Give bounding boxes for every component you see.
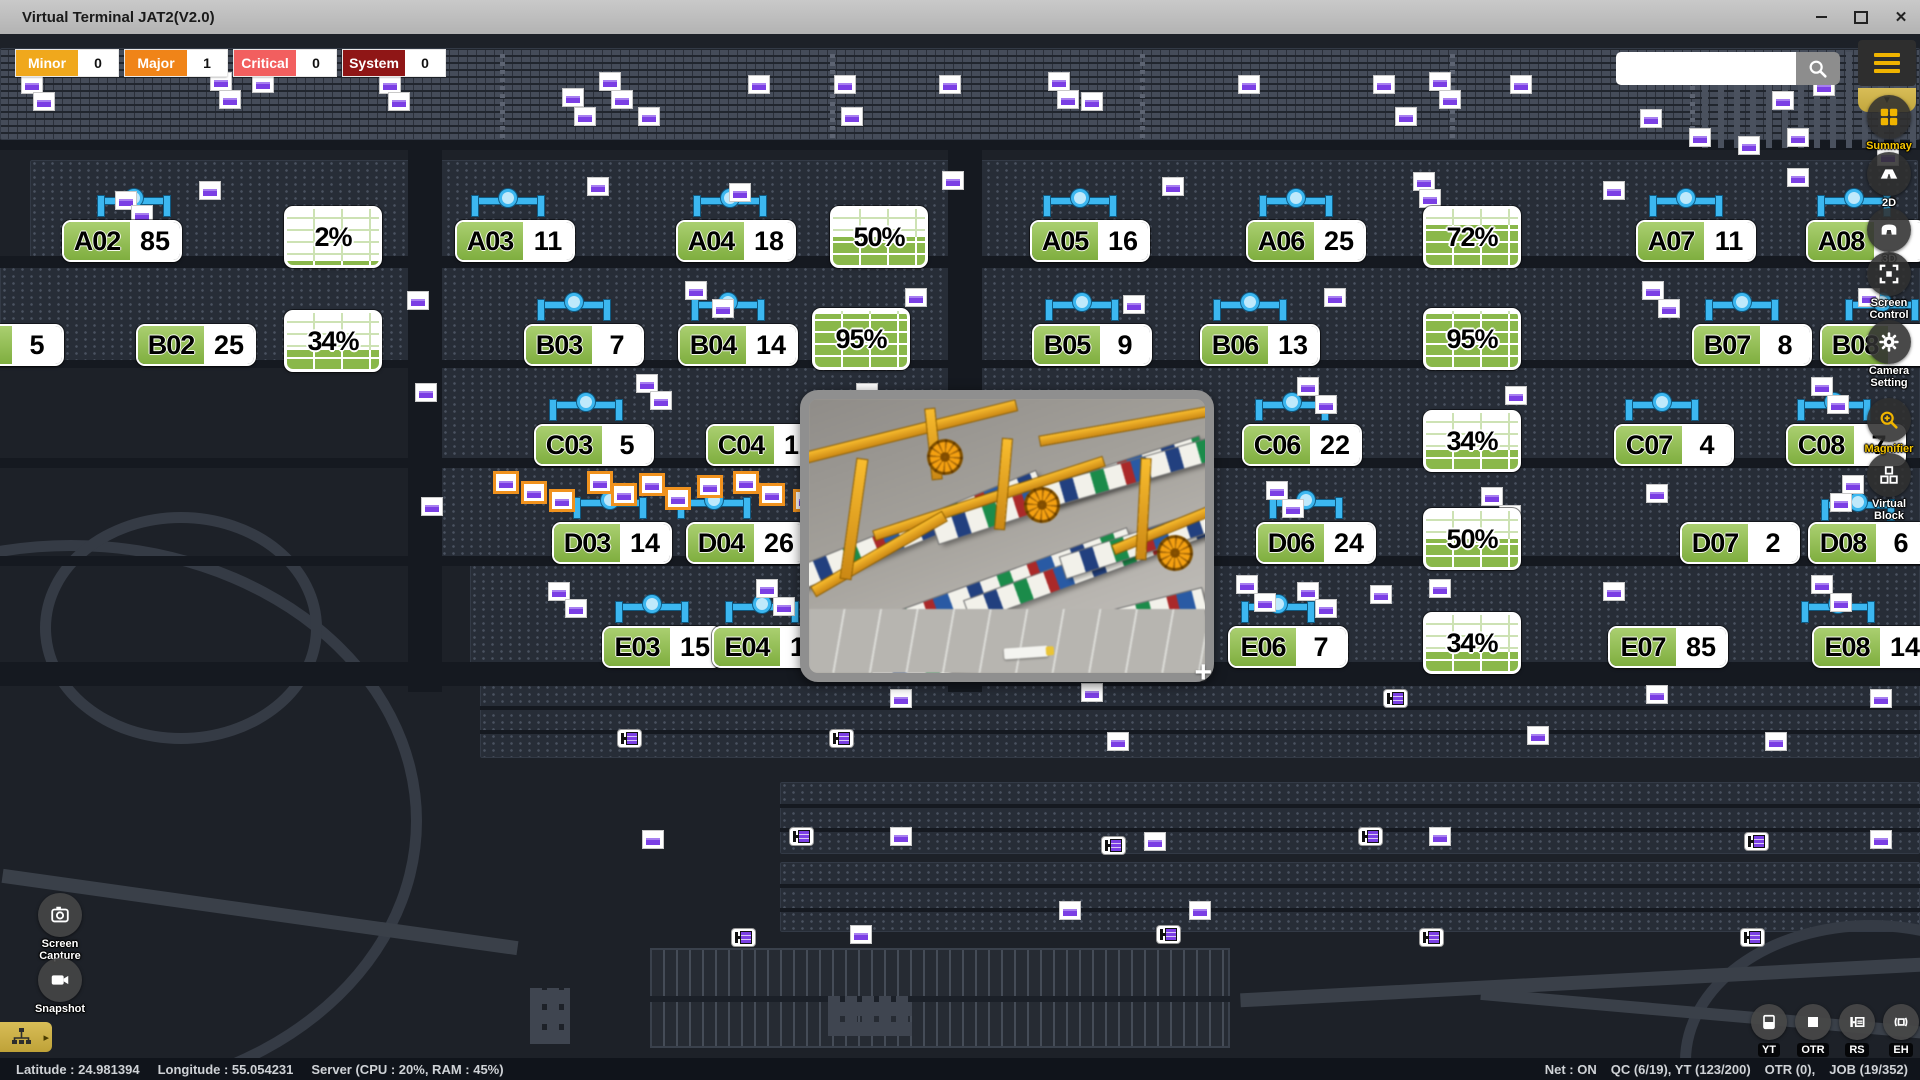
selected-container-marker[interactable] bbox=[614, 486, 634, 503]
screen-capture-icon bbox=[49, 904, 71, 926]
block-label-B05[interactable]: B059 bbox=[1032, 324, 1152, 366]
container-marker[interactable] bbox=[1828, 396, 1848, 413]
tool-screen-control: Screen Control bbox=[1860, 252, 1918, 321]
container-marker[interactable] bbox=[1316, 396, 1336, 413]
container-marker[interactable] bbox=[940, 76, 960, 93]
alarm-label: Major bbox=[125, 50, 187, 76]
selected-container-marker[interactable] bbox=[762, 486, 782, 503]
container-marker[interactable] bbox=[1060, 902, 1080, 919]
gear-icon bbox=[1878, 331, 1900, 353]
occupancy-gauge[interactable]: 2% bbox=[284, 206, 382, 268]
block-code: A03 bbox=[457, 222, 523, 260]
block-count: 25 bbox=[1314, 222, 1364, 260]
container-marker[interactable] bbox=[1371, 586, 1391, 603]
rtg-crane-icon bbox=[1624, 396, 1700, 424]
block-count: 14 bbox=[620, 524, 670, 562]
equipment-marker[interactable] bbox=[1102, 837, 1125, 854]
block-code: C06 bbox=[1244, 426, 1310, 464]
tool-camera-setting: Camera Setting bbox=[1860, 320, 1918, 389]
occupancy-gauge[interactable]: 95% bbox=[1423, 308, 1521, 370]
yard-strip bbox=[480, 684, 1920, 758]
block-count: 16 bbox=[1098, 222, 1148, 260]
block-label-C03[interactable]: C035 bbox=[534, 424, 654, 466]
parking-grid bbox=[650, 948, 1230, 1048]
tool-label: RS bbox=[1845, 1043, 1868, 1057]
container-marker[interactable] bbox=[686, 282, 706, 299]
search-input[interactable] bbox=[1616, 52, 1796, 85]
selected-container-marker[interactable] bbox=[590, 474, 610, 491]
block-label-C07[interactable]: C074 bbox=[1614, 424, 1734, 466]
container-marker[interactable] bbox=[1482, 488, 1502, 505]
block-label-B07[interactable]: B078 bbox=[1692, 324, 1812, 366]
status-net: Net : ON bbox=[1545, 1062, 1597, 1077]
container-marker[interactable] bbox=[1298, 378, 1318, 395]
eh-button[interactable] bbox=[1883, 1004, 1919, 1040]
container-marker[interactable] bbox=[637, 375, 657, 392]
yard-road bbox=[780, 804, 1920, 808]
container-marker[interactable] bbox=[713, 300, 733, 317]
equipment-marker[interactable] bbox=[618, 730, 641, 747]
alarm-label: System bbox=[343, 50, 405, 76]
screen-capture-button[interactable] bbox=[38, 893, 82, 937]
block-label-D06[interactable]: D0624 bbox=[1256, 522, 1376, 564]
container-marker[interactable] bbox=[575, 108, 595, 125]
screen-control-button[interactable] bbox=[1867, 252, 1911, 296]
status-bar: Latitude : 24.981394 Longitude : 55.0542… bbox=[0, 1058, 1920, 1080]
container-marker[interactable] bbox=[389, 93, 409, 110]
container-marker[interactable] bbox=[1163, 178, 1183, 195]
alarm-count: 0 bbox=[78, 50, 118, 76]
block-label-B06[interactable]: B0613 bbox=[1200, 324, 1320, 366]
container-marker[interactable] bbox=[906, 289, 926, 306]
block-code: E07 bbox=[1610, 628, 1676, 666]
block-code: A07 bbox=[1638, 222, 1704, 260]
block-label-D07[interactable]: D072 bbox=[1680, 522, 1800, 564]
block-label-B02[interactable]: B0225 bbox=[136, 324, 256, 366]
container-marker[interactable] bbox=[1430, 828, 1450, 845]
crane-beam-art bbox=[801, 401, 1017, 464]
building-cluster bbox=[530, 988, 570, 1044]
container-marker[interactable] bbox=[730, 184, 750, 201]
yard-road bbox=[780, 908, 1920, 912]
eh-icon bbox=[1891, 1012, 1911, 1032]
block-code: C04 bbox=[708, 426, 774, 464]
building-cluster bbox=[828, 996, 912, 1036]
block-count: 18 bbox=[744, 222, 794, 260]
container-marker[interactable] bbox=[1298, 583, 1318, 600]
rtg-crane-icon bbox=[548, 396, 624, 424]
container-marker[interactable] bbox=[1831, 594, 1851, 611]
block-label-D08[interactable]: D086 bbox=[1808, 522, 1920, 564]
container-marker[interactable] bbox=[1237, 576, 1257, 593]
block-code bbox=[0, 326, 12, 364]
block-label-B04[interactable]: B0414 bbox=[678, 324, 798, 366]
crane-wheel-art bbox=[1024, 487, 1060, 523]
equipment-marker[interactable] bbox=[732, 929, 755, 946]
gauge-value: 50% bbox=[833, 209, 925, 265]
camera-popup[interactable]: + bbox=[800, 390, 1214, 682]
summary-button[interactable] bbox=[1867, 95, 1911, 139]
container-marker[interactable] bbox=[380, 76, 400, 93]
occupancy-gauge[interactable]: 72% bbox=[1423, 206, 1521, 268]
container-marker[interactable] bbox=[1255, 594, 1275, 611]
container-marker[interactable] bbox=[639, 108, 659, 125]
container-marker[interactable] bbox=[253, 75, 273, 92]
container-marker[interactable] bbox=[851, 926, 871, 943]
container-marker[interactable] bbox=[1659, 300, 1679, 317]
equipment-marker[interactable] bbox=[1359, 828, 1382, 845]
alarm-count: 1 bbox=[187, 50, 227, 76]
summary-grid-icon bbox=[1878, 106, 1900, 128]
block-code: C08 bbox=[1788, 426, 1854, 464]
yard-road bbox=[0, 140, 1920, 150]
tool-label: Screen Control bbox=[1860, 297, 1918, 321]
container-marker[interactable] bbox=[1082, 93, 1102, 110]
block-label-A07[interactable]: A0711 bbox=[1636, 220, 1756, 262]
container-marker[interactable] bbox=[1430, 73, 1450, 90]
container-marker[interactable] bbox=[835, 76, 855, 93]
camera-photo bbox=[809, 399, 1205, 673]
block-label-A05[interactable]: A0516 bbox=[1030, 220, 1150, 262]
container-marker[interactable] bbox=[1283, 500, 1303, 517]
container-marker[interactable] bbox=[651, 392, 671, 409]
selected-container-marker[interactable] bbox=[736, 474, 756, 491]
block-code: A02 bbox=[64, 222, 130, 260]
container-marker[interactable] bbox=[1108, 733, 1128, 750]
container-marker[interactable] bbox=[1604, 583, 1624, 600]
app-window: A0285A0311A0418A0516A0625A0711A085B0225B… bbox=[0, 0, 1920, 1080]
equipment-marker[interactable] bbox=[830, 730, 853, 747]
road-curve bbox=[40, 512, 322, 744]
gauge-value: 72% bbox=[1426, 209, 1518, 265]
block-count: 13 bbox=[1268, 326, 1318, 364]
container-marker[interactable] bbox=[1430, 580, 1450, 597]
block-label-E06[interactable]: E067 bbox=[1228, 626, 1348, 668]
status-job: JOB (19/352) bbox=[1829, 1062, 1908, 1077]
status-otr: OTR (0), bbox=[1765, 1062, 1816, 1077]
container-marker[interactable] bbox=[1871, 690, 1891, 707]
container-marker[interactable] bbox=[1604, 182, 1624, 199]
container-marker[interactable] bbox=[1739, 137, 1759, 154]
container-marker[interactable] bbox=[549, 583, 569, 600]
container-marker[interactable] bbox=[1082, 684, 1102, 701]
selected-container-marker[interactable] bbox=[642, 476, 662, 493]
tool-yt: YT bbox=[1747, 1004, 1791, 1058]
rs-icon bbox=[1847, 1012, 1867, 1032]
alarm-label: Minor bbox=[16, 50, 78, 76]
block-count: 2 bbox=[1748, 524, 1798, 562]
crane-wheel-art bbox=[927, 439, 963, 475]
container-marker[interactable] bbox=[1528, 727, 1548, 744]
alarm-count: 0 bbox=[405, 50, 445, 76]
minimize-button[interactable] bbox=[1812, 8, 1830, 26]
yard-road bbox=[408, 148, 442, 692]
container-marker[interactable] bbox=[1239, 76, 1259, 93]
alarm-label: Critical bbox=[234, 50, 296, 76]
container-marker[interactable] bbox=[1316, 600, 1336, 617]
block-count: 24 bbox=[1324, 524, 1374, 562]
rtg-crane-icon bbox=[1044, 296, 1120, 324]
container-marker[interactable] bbox=[1773, 92, 1793, 109]
tool-label: Virtual Block bbox=[1860, 498, 1918, 522]
block-label-A06[interactable]: A0625 bbox=[1246, 220, 1366, 262]
camera-popup-frame bbox=[800, 390, 1214, 682]
container-marker[interactable] bbox=[566, 600, 586, 617]
block-code: B04 bbox=[680, 326, 746, 364]
photo-road bbox=[809, 609, 1205, 673]
block-label-B03[interactable]: B037 bbox=[524, 324, 644, 366]
container-marker[interactable] bbox=[1690, 129, 1710, 146]
container-marker[interactable] bbox=[1831, 494, 1851, 511]
container-marker[interactable] bbox=[1812, 576, 1832, 593]
container-marker[interactable] bbox=[1766, 733, 1786, 750]
status-longitude: Longitude : 55.054231 bbox=[158, 1062, 294, 1077]
block-label-A04[interactable]: A0418 bbox=[676, 220, 796, 262]
block-code: B03 bbox=[526, 326, 592, 364]
container-marker[interactable] bbox=[408, 292, 428, 309]
container-marker[interactable] bbox=[563, 89, 583, 106]
tree-icon bbox=[8, 1025, 34, 1049]
occupancy-gauge[interactable]: 50% bbox=[1423, 508, 1521, 570]
container-marker[interactable] bbox=[1325, 289, 1345, 306]
container-marker[interactable] bbox=[1420, 190, 1440, 207]
alarm-chip-major[interactable]: Major 1 bbox=[125, 50, 227, 76]
selected-container-marker[interactable] bbox=[700, 478, 720, 495]
container-marker[interactable] bbox=[891, 828, 911, 845]
gauge-value: 50% bbox=[1426, 511, 1518, 567]
camera-setting-button[interactable] bbox=[1867, 320, 1911, 364]
yard-road bbox=[480, 706, 1920, 710]
equipment-marker[interactable] bbox=[1420, 929, 1443, 946]
hamburger-icon bbox=[1874, 53, 1900, 57]
selected-container-marker[interactable] bbox=[552, 492, 572, 509]
block-code: E04 bbox=[714, 628, 780, 666]
block-label-C06[interactable]: C0622 bbox=[1242, 424, 1362, 466]
alarm-chip-critical[interactable]: Critical 0 bbox=[234, 50, 336, 76]
popup-zoom-plus[interactable]: + bbox=[1194, 656, 1212, 690]
container-marker[interactable] bbox=[1506, 387, 1526, 404]
alarm-chip-system[interactable]: System 0 bbox=[343, 50, 445, 76]
rtg-crane-icon bbox=[1648, 192, 1724, 220]
tool-label: OTR bbox=[1797, 1043, 1828, 1057]
alarm-bar: Minor 0 Major 1 Critical 0 System 0 bbox=[16, 50, 445, 76]
block-code: D06 bbox=[1258, 524, 1324, 562]
selected-container-marker[interactable] bbox=[496, 474, 516, 491]
container-marker[interactable] bbox=[1647, 686, 1667, 703]
block-label-E07[interactable]: E0785 bbox=[1608, 626, 1728, 668]
tool-2d: 2D bbox=[1860, 152, 1918, 209]
block-label-D03[interactable]: D0314 bbox=[552, 522, 672, 564]
yard-road bbox=[480, 730, 1920, 734]
equipment-marker[interactable] bbox=[1384, 690, 1407, 707]
otr-icon bbox=[1803, 1012, 1823, 1032]
container-marker[interactable] bbox=[416, 384, 436, 401]
block-code: A04 bbox=[678, 222, 744, 260]
container-marker[interactable] bbox=[1396, 108, 1416, 125]
2d-icon bbox=[1878, 163, 1900, 185]
search-bar bbox=[1616, 52, 1840, 85]
gauge-value: 34% bbox=[1426, 413, 1518, 469]
container-marker[interactable] bbox=[22, 76, 42, 93]
container-marker[interactable] bbox=[422, 498, 442, 515]
tool-magnifier: Magnifier bbox=[1860, 398, 1918, 455]
tree-panel-tab[interactable]: ▸ bbox=[0, 1022, 52, 1052]
container-marker[interactable] bbox=[749, 76, 769, 93]
container-marker[interactable] bbox=[1414, 173, 1434, 190]
container-marker[interactable] bbox=[1049, 73, 1069, 90]
rtg-crane-icon bbox=[614, 598, 690, 626]
crane-wheel-art bbox=[1157, 535, 1193, 571]
gauge-value: 2% bbox=[287, 209, 379, 265]
block-code: E03 bbox=[604, 628, 670, 666]
container-marker[interactable] bbox=[1124, 296, 1144, 313]
container-marker[interactable] bbox=[757, 580, 777, 597]
container-marker[interactable] bbox=[1812, 378, 1832, 395]
2d-button[interactable] bbox=[1867, 152, 1911, 196]
container-marker[interactable] bbox=[34, 93, 54, 110]
expand-arrow-icon: ▸ bbox=[43, 1031, 49, 1044]
yard-road bbox=[780, 884, 1920, 888]
menu-button[interactable] bbox=[1858, 40, 1916, 86]
magnifier-button[interactable] bbox=[1867, 398, 1911, 442]
equipment-marker[interactable] bbox=[1741, 929, 1764, 946]
occupancy-gauge[interactable]: 34% bbox=[1423, 612, 1521, 674]
rtg-crane-icon bbox=[1042, 192, 1118, 220]
block-code: D07 bbox=[1682, 524, 1748, 562]
search-icon bbox=[1807, 58, 1829, 80]
container-marker[interactable] bbox=[842, 108, 862, 125]
equipment-marker[interactable] bbox=[790, 828, 813, 845]
block-count: 11 bbox=[523, 222, 573, 260]
gauge-value: 95% bbox=[1426, 311, 1518, 367]
container-marker[interactable] bbox=[1267, 482, 1287, 499]
block-count: 85 bbox=[130, 222, 180, 260]
block-code: D08 bbox=[1810, 524, 1876, 562]
block-label-E03[interactable]: E0315 bbox=[602, 626, 722, 668]
occupancy-gauge[interactable]: 50% bbox=[830, 206, 928, 268]
container-marker[interactable] bbox=[643, 831, 663, 848]
maximize-button[interactable] bbox=[1852, 8, 1870, 26]
block-count: 14 bbox=[1880, 628, 1920, 666]
block-label-D04[interactable]: D0426 bbox=[686, 522, 806, 564]
block-label-edge[interactable]: 5 bbox=[0, 324, 64, 366]
yt-button[interactable] bbox=[1751, 1004, 1787, 1040]
gauge-value: 34% bbox=[287, 313, 379, 369]
yard-road bbox=[780, 828, 1920, 832]
block-count: 9 bbox=[1100, 326, 1150, 364]
block-code: B02 bbox=[138, 326, 204, 364]
container-marker[interactable] bbox=[1643, 282, 1663, 299]
container-marker[interactable] bbox=[1190, 902, 1210, 919]
block-label-E08[interactable]: E0814 bbox=[1812, 626, 1920, 668]
block-code: D04 bbox=[688, 524, 754, 562]
title-bar: Virtual Terminal JAT2(V2.0) ✕ bbox=[0, 0, 1920, 34]
container-marker[interactable] bbox=[891, 690, 911, 707]
search-button[interactable] bbox=[1796, 52, 1840, 85]
block-count: 7 bbox=[1296, 628, 1346, 666]
container-marker[interactable] bbox=[1145, 833, 1165, 850]
container-marker[interactable] bbox=[612, 91, 632, 108]
alarm-chip-minor[interactable]: Minor 0 bbox=[16, 50, 118, 76]
block-count: 7 bbox=[592, 326, 642, 364]
block-label-A03[interactable]: A0311 bbox=[455, 220, 575, 262]
otr-button[interactable] bbox=[1795, 1004, 1831, 1040]
rs-button[interactable] bbox=[1839, 1004, 1875, 1040]
tool-eh: EH bbox=[1879, 1004, 1920, 1058]
magnifier-icon bbox=[1878, 409, 1900, 431]
block-code: D03 bbox=[554, 524, 620, 562]
tool-otr: OTR bbox=[1791, 1004, 1835, 1058]
block-count: 14 bbox=[746, 326, 796, 364]
snapshot-button[interactable] bbox=[38, 958, 82, 1002]
container-marker[interactable] bbox=[1788, 169, 1808, 186]
container-marker[interactable] bbox=[1788, 129, 1808, 146]
tool-snapshot: Snapshot bbox=[30, 958, 90, 1015]
container-marker[interactable] bbox=[943, 172, 963, 189]
block-code: A06 bbox=[1248, 222, 1314, 260]
block-code: E06 bbox=[1230, 628, 1296, 666]
selected-container-marker[interactable] bbox=[524, 484, 544, 501]
block-count: 26 bbox=[754, 524, 804, 562]
status-server: Server (CPU : 20%, RAM : 45%) bbox=[311, 1062, 503, 1077]
rtg-crane-icon bbox=[1704, 296, 1780, 324]
block-count: 85 bbox=[1676, 628, 1726, 666]
virtual-block-button[interactable] bbox=[1867, 453, 1911, 497]
container-marker[interactable] bbox=[220, 91, 240, 108]
container-marker[interactable] bbox=[774, 598, 794, 615]
selected-container-marker[interactable] bbox=[668, 490, 688, 507]
container-marker[interactable] bbox=[600, 73, 620, 90]
occupancy-gauge[interactable]: 34% bbox=[1423, 410, 1521, 472]
blocks-icon bbox=[1878, 464, 1900, 486]
block-code: B07 bbox=[1694, 326, 1760, 364]
container-marker[interactable] bbox=[200, 182, 220, 199]
close-button[interactable]: ✕ bbox=[1892, 8, 1910, 26]
tool-screen-capture: Screen Capture bbox=[30, 893, 90, 962]
block-count: 6 bbox=[1876, 524, 1920, 562]
tool-label: YT bbox=[1758, 1043, 1780, 1057]
3d-button[interactable] bbox=[1867, 208, 1911, 252]
container-marker[interactable] bbox=[1647, 485, 1667, 502]
container-marker[interactable] bbox=[588, 178, 608, 195]
equipment-marker[interactable] bbox=[1745, 833, 1768, 850]
block-count: 25 bbox=[204, 326, 254, 364]
equipment-marker[interactable] bbox=[1157, 926, 1180, 943]
container-marker[interactable] bbox=[1871, 831, 1891, 848]
tool-label: Summay bbox=[1860, 140, 1918, 152]
rtg-crane-icon bbox=[572, 494, 648, 522]
container-marker[interactable] bbox=[1058, 91, 1078, 108]
container-marker[interactable] bbox=[1440, 91, 1460, 108]
block-code: C03 bbox=[536, 426, 602, 464]
yt-truck-icon bbox=[1759, 1012, 1779, 1032]
occupancy-gauge[interactable]: 34% bbox=[284, 310, 382, 372]
occupancy-gauge[interactable]: 95% bbox=[812, 308, 910, 370]
lane-separator bbox=[1140, 50, 1145, 138]
block-code: B06 bbox=[1202, 326, 1268, 364]
container-marker[interactable] bbox=[1511, 76, 1531, 93]
lane-separator bbox=[830, 50, 835, 138]
rtg-crane-icon bbox=[536, 296, 612, 324]
container-marker[interactable] bbox=[1641, 110, 1661, 127]
block-label-A02[interactable]: A0285 bbox=[62, 220, 182, 262]
block-count: 22 bbox=[1310, 426, 1360, 464]
block-code: E08 bbox=[1814, 628, 1880, 666]
container-marker[interactable] bbox=[1374, 76, 1394, 93]
tool-rs: RS bbox=[1835, 1004, 1879, 1058]
minimize-icon bbox=[1816, 16, 1827, 18]
block-code: A05 bbox=[1032, 222, 1098, 260]
